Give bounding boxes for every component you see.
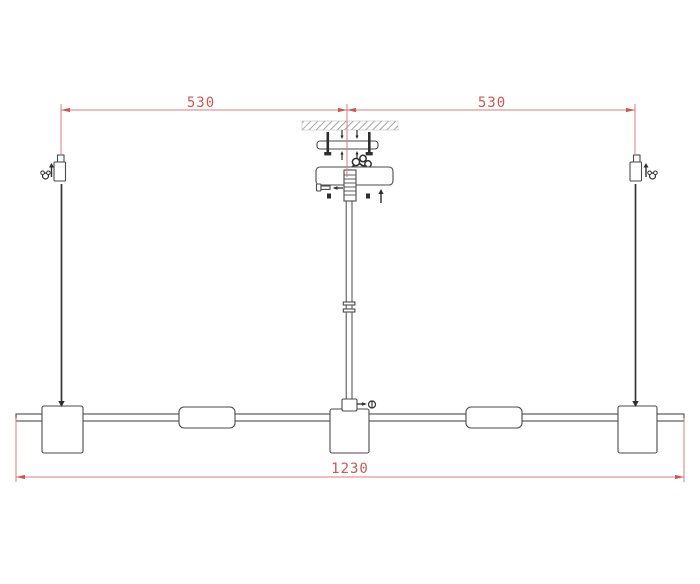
bar-connector-pill xyxy=(466,407,522,428)
arrow-up-icon xyxy=(644,163,649,168)
bolt-head-icon xyxy=(324,152,331,155)
cable-gripper-right xyxy=(630,155,642,181)
lamp-shade-center xyxy=(330,409,369,453)
bolt-head-icon xyxy=(366,152,373,155)
dimension-label-1230: 1230 xyxy=(331,461,369,477)
stem-ferrule xyxy=(342,399,357,411)
threaded-rod xyxy=(344,170,356,201)
technical-drawing-page: 530 530 1230 xyxy=(0,0,700,584)
bolt-icon xyxy=(327,132,330,153)
lamp-shade-right xyxy=(618,406,657,453)
center-stem-rod xyxy=(343,201,355,400)
gripper-screw-left xyxy=(41,163,54,179)
suspension-cable-left xyxy=(58,184,64,407)
screw-head-icon xyxy=(317,184,322,191)
pendant-lamp-diagram: 530 530 1230 xyxy=(0,0,700,584)
ceiling-hatch xyxy=(302,121,398,130)
arrow-up-icon xyxy=(49,163,54,168)
nut-icon xyxy=(366,194,370,199)
arrow-left-icon xyxy=(333,186,344,189)
suspension-cable-right xyxy=(632,184,638,407)
arrow-down-icon xyxy=(340,130,358,139)
dimension-top: 530 530 xyxy=(61,95,635,177)
arrow-up-icon xyxy=(378,189,383,203)
lamp-shade-left xyxy=(42,406,83,453)
gripper-screw-right xyxy=(644,163,658,179)
bolt-icon xyxy=(368,132,371,153)
cable-gripper-left xyxy=(54,155,66,181)
bar-connector-pill xyxy=(179,407,235,428)
rod-joint-flange xyxy=(343,309,355,312)
dimension-label-530-left: 530 xyxy=(187,95,215,111)
ferrule-set-screw xyxy=(357,401,376,409)
arrow-right-icon xyxy=(357,402,367,405)
screw-shaft-icon xyxy=(321,186,330,189)
nut-icon xyxy=(327,194,331,199)
rod-joint-flange xyxy=(343,302,355,305)
dimension-label-530-right: 530 xyxy=(478,95,506,111)
